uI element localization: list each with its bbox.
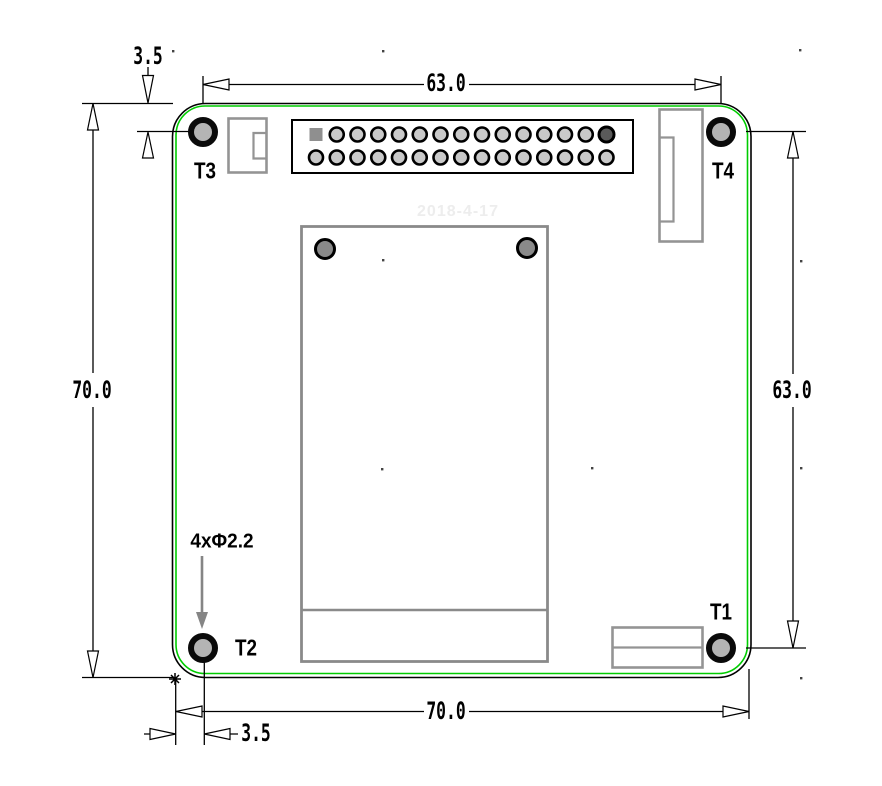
reference-dot (591, 467, 593, 469)
hole-callout-text: 4xΦ2.2 (190, 531, 253, 554)
pin (454, 128, 468, 142)
dim-right-hole-span: 63.0 (772, 376, 811, 404)
reference-dot (800, 260, 802, 262)
pin (496, 151, 510, 165)
pin (392, 128, 406, 142)
center-module (302, 227, 548, 662)
module-screw-left (316, 240, 335, 259)
pin (454, 151, 468, 165)
pin (537, 128, 551, 142)
pin (371, 151, 385, 165)
pin-header (292, 120, 633, 173)
connector-top-left (229, 119, 267, 173)
reference-dot (800, 677, 802, 679)
hole-label-t4: T4 (712, 158, 734, 185)
dim-top-hole-offset: 3.5 (133, 42, 162, 70)
hole-label-t2: T2 (235, 635, 257, 662)
pin (600, 151, 614, 165)
pin (579, 151, 593, 165)
pin-1-square (310, 128, 323, 141)
dim-top-hole-span: 63.0 (426, 69, 465, 97)
reference-dot (382, 50, 384, 52)
reference-dot (381, 468, 383, 470)
pin (351, 151, 365, 165)
dim-left-board-height: 70.0 (72, 376, 111, 404)
pin (413, 151, 427, 165)
mounting-hole-t1 (709, 636, 733, 660)
pin (330, 128, 344, 142)
origin-marker (169, 673, 181, 685)
pin (309, 151, 323, 165)
pin (351, 128, 365, 142)
connector-right-vertical (660, 110, 703, 242)
pin (558, 128, 572, 142)
pin-dark (599, 127, 614, 142)
dim-left-hole-offset: 3.5 (241, 719, 270, 747)
pin (475, 151, 489, 165)
reference-dot (800, 467, 802, 469)
pin (537, 151, 551, 165)
module-screw-right (518, 239, 537, 258)
drawing-graphics (0, 0, 882, 786)
pin (413, 128, 427, 142)
pin (392, 151, 406, 165)
reference-dot (172, 50, 174, 52)
date-watermark: 2018-4-17 (417, 203, 499, 221)
reference-dot (382, 259, 384, 261)
mounting-hole-t3 (191, 120, 215, 144)
mounting-hole-t2 (191, 636, 215, 660)
pin (475, 128, 489, 142)
pin (579, 128, 593, 142)
hole-label-t3: T3 (194, 158, 216, 185)
pin (434, 128, 448, 142)
pin (517, 128, 531, 142)
dim-bottom-board-width: 70.0 (426, 697, 465, 725)
pin (496, 128, 510, 142)
pin (330, 151, 344, 165)
hole-label-t1: T1 (710, 599, 732, 626)
mounting-hole-t4 (709, 120, 733, 144)
pin (558, 151, 572, 165)
pin (517, 151, 531, 165)
pcb-mechanical-drawing: 2018-4-17 63.0 63.0 70.0 70.0 3.5 3.5 4x… (0, 0, 882, 786)
connector-bottom-right (613, 628, 703, 668)
reference-dot (799, 49, 801, 51)
pin (434, 151, 448, 165)
pin (371, 128, 385, 142)
